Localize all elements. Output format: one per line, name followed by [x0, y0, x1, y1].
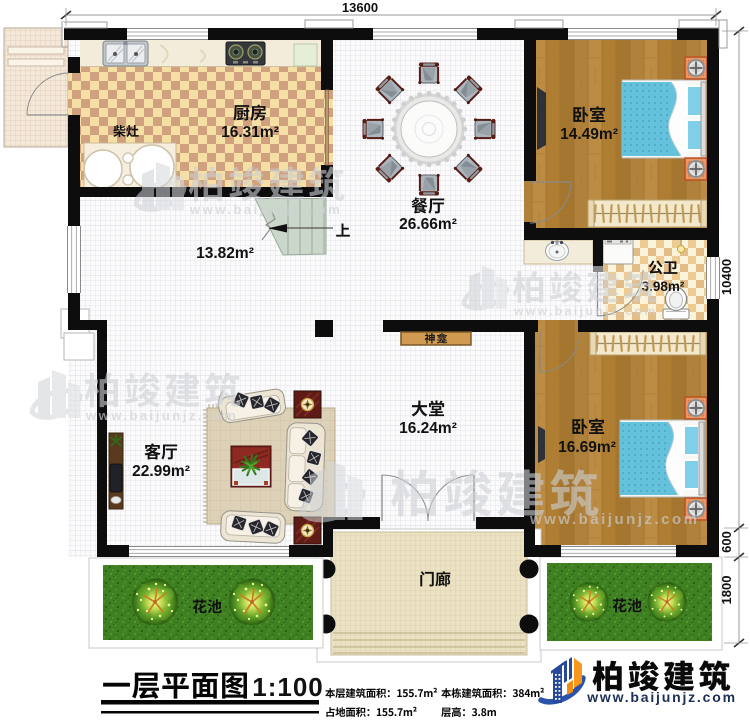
svg-text:13600: 13600: [342, 0, 378, 15]
svg-text:1800: 1800: [719, 576, 734, 605]
svg-text:16.69m²: 16.69m²: [558, 439, 616, 456]
svg-text:www.baijunjz.com: www.baijunjz.com: [189, 202, 342, 217]
svg-text:www.baijunjz.com: www.baijunjz.com: [513, 304, 658, 318]
svg-text:www.baijunjz.com: www.baijunjz.com: [85, 408, 238, 423]
svg-text:www.baijunjz.com: www.baijunjz.com: [529, 511, 699, 528]
svg-text:14.49m²: 14.49m²: [560, 126, 618, 143]
svg-text:16.24m²: 16.24m²: [399, 420, 457, 437]
svg-text:1:100: 1:100: [252, 672, 324, 702]
svg-text:10400: 10400: [719, 259, 734, 295]
svg-text:16.31m²: 16.31m²: [221, 124, 279, 141]
svg-text:600: 600: [719, 531, 734, 553]
svg-text:26.66m²: 26.66m²: [399, 216, 457, 233]
svg-text:13.82m²: 13.82m²: [196, 245, 254, 262]
svg-text:22.99m²: 22.99m²: [132, 463, 190, 480]
svg-text:www.baijunjz.com: www.baijunjz.com: [586, 689, 737, 705]
